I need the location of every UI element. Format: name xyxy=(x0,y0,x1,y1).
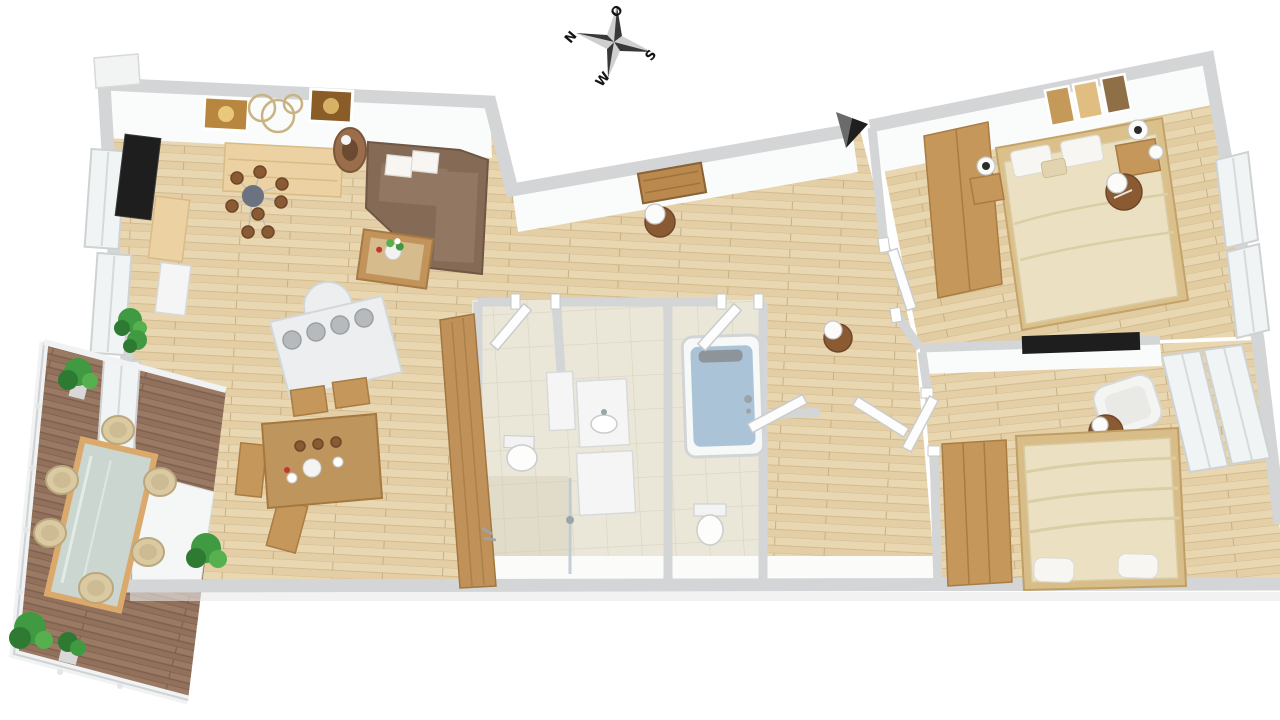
wicker-chair xyxy=(102,416,134,444)
sofa-cushion xyxy=(411,151,439,174)
burner xyxy=(331,316,349,334)
compass-rose: N O S W xyxy=(562,3,660,90)
wall-picture-right xyxy=(309,89,353,123)
faucet xyxy=(601,409,607,415)
coffee-table xyxy=(357,229,433,288)
floor-lamp xyxy=(334,128,366,172)
shower-door-handle xyxy=(566,516,574,524)
pillow xyxy=(1034,557,1075,582)
teapot xyxy=(303,459,321,477)
door-jamb xyxy=(878,237,890,252)
wicker-chair xyxy=(34,519,66,547)
compass-label-east: O xyxy=(608,3,627,21)
compass-label-west: W xyxy=(593,69,614,90)
door-jamb xyxy=(890,307,902,322)
washbasin xyxy=(591,415,617,433)
tv-lowboard xyxy=(148,196,189,262)
small-cabinet xyxy=(547,371,576,430)
double-bed xyxy=(1016,428,1186,590)
hallway-floor-south xyxy=(765,348,936,588)
wardrobe xyxy=(924,122,1002,298)
pillow xyxy=(1118,553,1159,578)
vanity-counter xyxy=(576,451,635,516)
dining-chair xyxy=(332,378,369,408)
pendant-lamp xyxy=(1106,173,1142,210)
wicker-chair xyxy=(46,466,78,494)
corner-pillar xyxy=(94,54,140,88)
dining-chair xyxy=(235,443,266,497)
sofa-cushion xyxy=(385,155,413,178)
bathtub xyxy=(682,335,764,458)
wall-picture-left xyxy=(203,97,249,131)
wicker-chair xyxy=(79,573,113,603)
bottom-wall-shadow xyxy=(130,592,1280,601)
burner xyxy=(307,323,325,341)
door-jamb xyxy=(754,294,763,309)
door-jamb xyxy=(928,446,940,456)
wicker-chair xyxy=(144,468,176,496)
wicker-chair xyxy=(132,538,164,566)
compass-label-south: S xyxy=(643,47,661,64)
wardrobe xyxy=(942,440,1012,586)
dining-chair xyxy=(290,386,327,416)
door-jamb xyxy=(551,294,560,309)
door-jamb xyxy=(717,294,726,309)
door-jamb xyxy=(511,294,520,309)
burner xyxy=(283,331,301,349)
white-cabinet xyxy=(155,262,191,315)
floor-plan-svg: N O S W xyxy=(0,0,1280,720)
dining-table xyxy=(262,414,382,508)
burner xyxy=(355,309,373,327)
toilet xyxy=(694,504,726,545)
cup xyxy=(333,457,343,467)
compass-label-north: N xyxy=(562,29,580,47)
cup xyxy=(287,473,297,483)
